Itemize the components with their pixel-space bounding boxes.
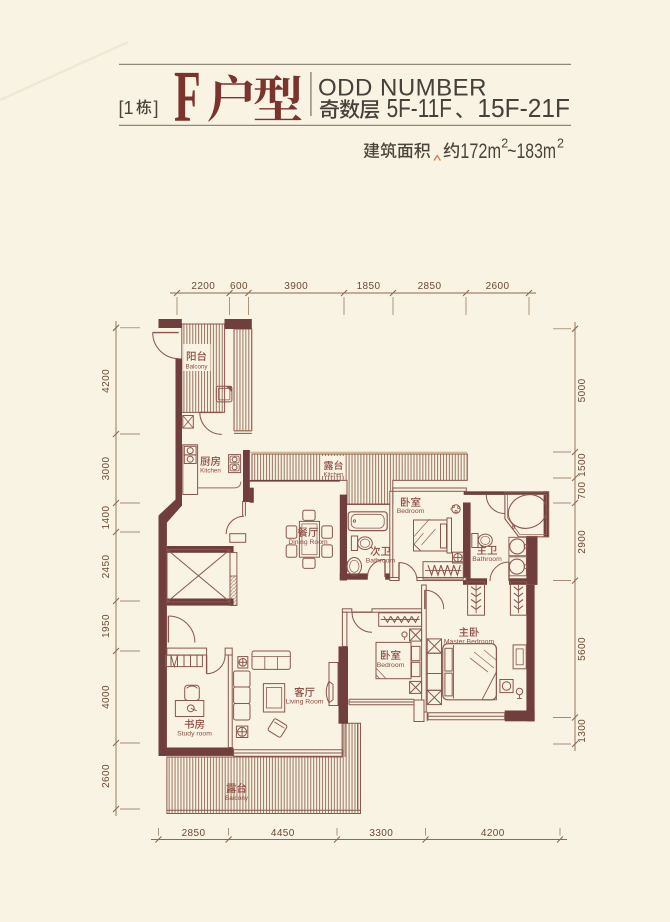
svg-text:Living Room: Living Room	[286, 699, 324, 706]
svg-text:Bedroom: Bedroom	[377, 662, 405, 669]
svg-text:4000: 4000	[101, 685, 112, 709]
svg-text:1300: 1300	[577, 719, 588, 743]
svg-text:Study room: Study room	[177, 731, 212, 738]
svg-text:Bathroom: Bathroom	[472, 556, 502, 563]
svg-text:2: 2	[557, 137, 564, 151]
svg-text:15F-21F: 15F-21F	[477, 93, 570, 123]
svg-text:5F-11F: 5F-11F	[387, 93, 452, 123]
svg-text:2450: 2450	[101, 555, 112, 579]
svg-text:1500: 1500	[577, 453, 588, 477]
svg-text:3900: 3900	[284, 281, 308, 292]
svg-text:5600: 5600	[577, 637, 588, 661]
svg-text:[1: [1	[119, 98, 134, 118]
svg-text:4450: 4450	[271, 828, 295, 839]
svg-text:Master Bedroom: Master Bedroom	[444, 639, 495, 646]
svg-text:3300: 3300	[369, 828, 393, 839]
svg-text:Balcony: Balcony	[225, 795, 249, 802]
svg-text:1950: 1950	[101, 614, 112, 638]
svg-text:600: 600	[230, 281, 248, 292]
svg-text:2200: 2200	[191, 281, 215, 292]
svg-text:Bedroom: Bedroom	[397, 508, 425, 515]
svg-text:Balcony: Balcony	[185, 364, 208, 371]
svg-text:Kitchen: Kitchen	[200, 468, 221, 475]
svg-text:]: ]	[154, 98, 159, 118]
svg-text:2600: 2600	[101, 764, 112, 788]
svg-text:1400: 1400	[101, 506, 112, 530]
svg-text:700: 700	[577, 482, 588, 500]
svg-text:1850: 1850	[357, 281, 381, 292]
svg-text:4200: 4200	[481, 828, 505, 839]
svg-text:172m: 172m	[460, 139, 501, 163]
svg-text:Kitchen: Kitchen	[323, 473, 343, 479]
svg-text:2600: 2600	[486, 281, 510, 292]
svg-text:F: F	[174, 57, 201, 138]
svg-text:3000: 3000	[101, 457, 112, 481]
svg-text:2850: 2850	[418, 281, 442, 292]
svg-text:Dining Room: Dining Room	[288, 539, 328, 546]
svg-text:2900: 2900	[577, 530, 588, 554]
svg-text:5000: 5000	[577, 378, 588, 402]
svg-text:~183m: ~183m	[507, 139, 556, 163]
svg-text:Bathroom: Bathroom	[366, 558, 396, 565]
svg-text:4200: 4200	[101, 369, 112, 393]
svg-text:2850: 2850	[182, 828, 206, 839]
